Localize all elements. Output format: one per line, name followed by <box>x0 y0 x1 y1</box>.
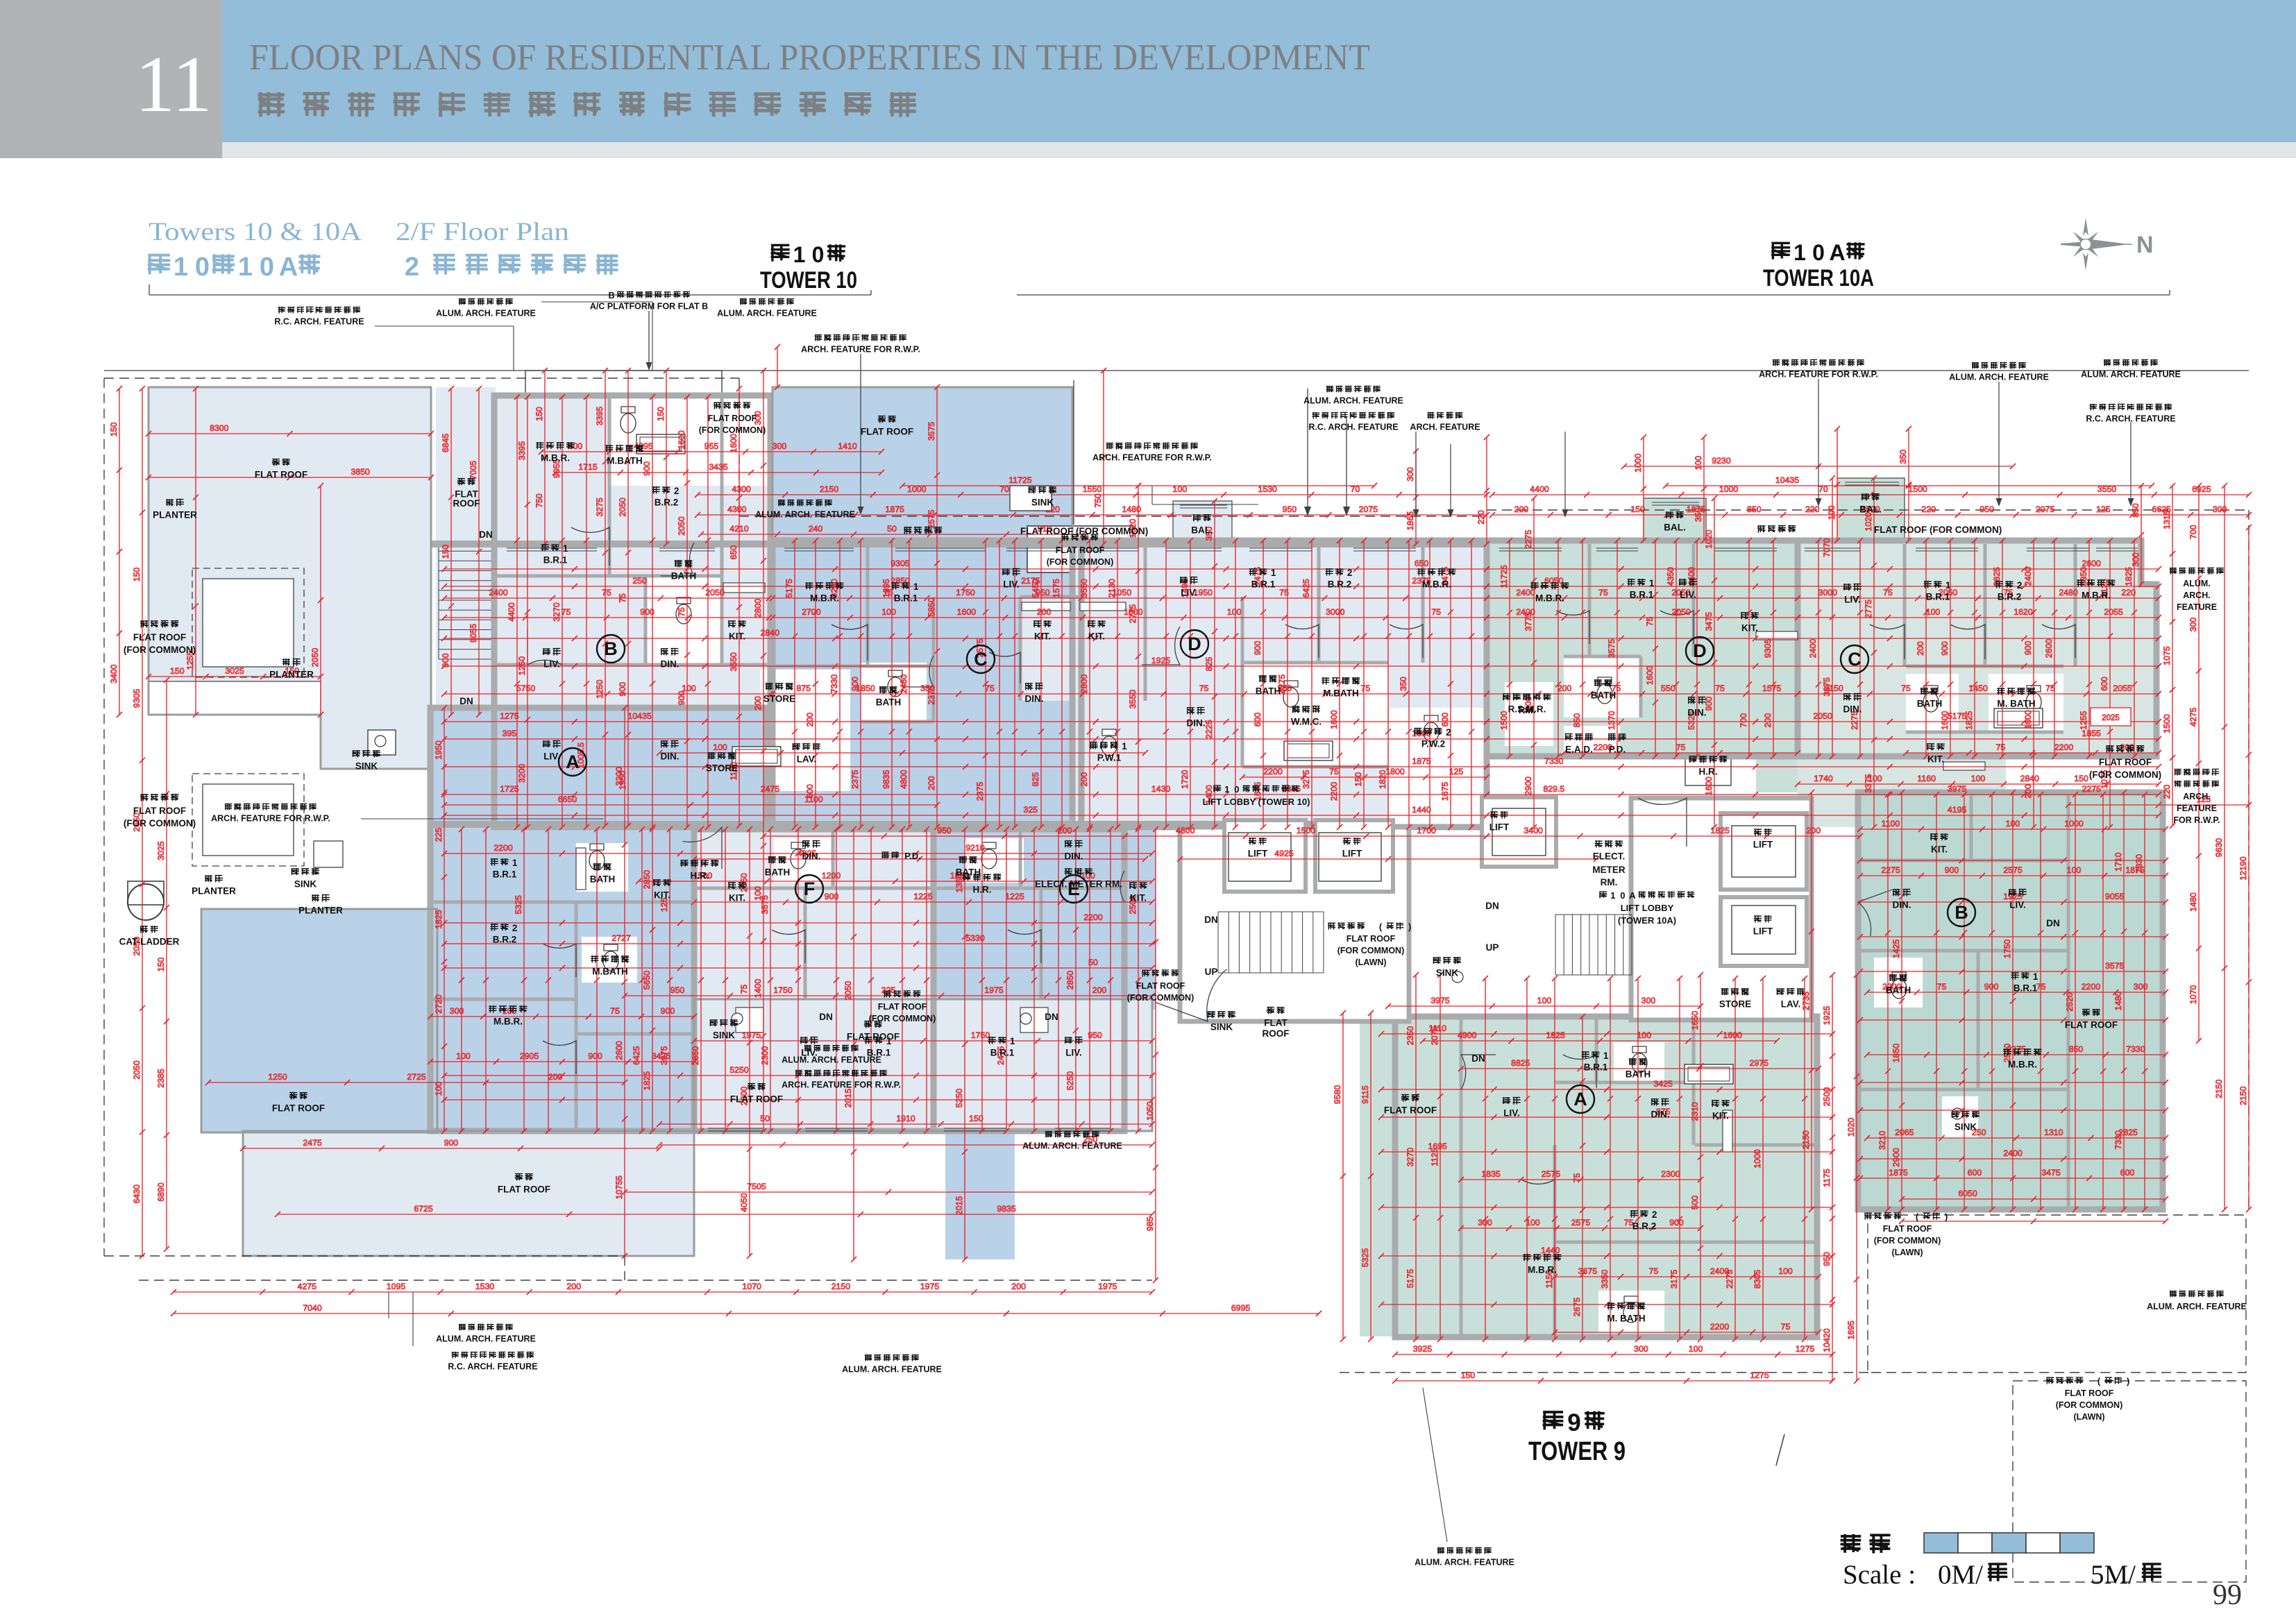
svg-text:3575: 3575 <box>760 895 770 915</box>
svg-text:75: 75 <box>985 683 995 693</box>
svg-text:0: 0 <box>260 253 274 282</box>
svg-text:75: 75 <box>1937 982 1947 992</box>
svg-text:FLAT ROOF: FLAT ROOF <box>255 470 307 480</box>
svg-text:600: 600 <box>1253 713 1263 727</box>
svg-text:600: 600 <box>1968 1168 1982 1178</box>
svg-text:2500: 2500 <box>1822 1087 1832 1107</box>
svg-text:PLANTER: PLANTER <box>298 906 343 916</box>
svg-text:750: 750 <box>1093 493 1103 508</box>
svg-text:1855: 1855 <box>2082 729 2102 738</box>
svg-text:6050: 6050 <box>1544 576 1564 586</box>
svg-text:2275: 2275 <box>2082 784 2102 794</box>
svg-text:ROOF: ROOF <box>1263 1028 1290 1039</box>
svg-text:FOR R.W.P.: FOR R.W.P. <box>2173 815 2220 825</box>
svg-text:150: 150 <box>1353 772 1363 787</box>
svg-text:(: ( <box>1916 1212 1919 1222</box>
svg-text:1710: 1710 <box>2113 852 2123 872</box>
svg-text:A: A <box>1629 890 1636 901</box>
svg-text:1: 1 <box>1010 1036 1015 1046</box>
svg-text:FLAT ROOF: FLAT ROOF <box>861 427 913 437</box>
svg-text:3925: 3925 <box>1413 1344 1433 1354</box>
svg-text:ELECT.: ELECT. <box>1593 851 1626 862</box>
svg-text:2200: 2200 <box>1329 782 1339 801</box>
svg-text:1740: 1740 <box>1814 774 1833 783</box>
svg-text:LIFT: LIFT <box>1753 840 1773 850</box>
svg-text:0: 0 <box>1620 890 1625 901</box>
svg-text:FLAT ROOF: FLAT ROOF <box>1384 1105 1437 1116</box>
svg-text:2050: 2050 <box>618 498 627 517</box>
svg-text:(LAWN): (LAWN) <box>2073 1412 2104 1422</box>
svg-text:3400: 3400 <box>109 664 119 683</box>
svg-text:850: 850 <box>2131 503 2141 518</box>
svg-text:FEATURE: FEATURE <box>2177 804 2217 813</box>
svg-text:2275: 2275 <box>1523 529 1533 549</box>
svg-text:2900: 2900 <box>1523 776 1533 796</box>
svg-text:125: 125 <box>1449 767 1464 776</box>
svg-text:1695: 1695 <box>881 579 891 598</box>
svg-text:ALUM. ARCH. FEATURE: ALUM. ARCH. FEATURE <box>842 1365 942 1375</box>
svg-text:DN: DN <box>1045 1012 1058 1022</box>
svg-text:KIT.: KIT. <box>654 890 670 901</box>
svg-text:1430: 1430 <box>1151 784 1171 794</box>
svg-text:2575: 2575 <box>927 509 936 529</box>
svg-text:2840: 2840 <box>2020 774 2040 783</box>
svg-text:75: 75 <box>1715 683 1725 693</box>
svg-text:M. BATH: M. BATH <box>1607 1314 1645 1324</box>
svg-text:2727: 2727 <box>611 933 631 943</box>
svg-text:950: 950 <box>1283 504 1297 514</box>
svg-text:(FOR COMMON): (FOR COMMON) <box>1047 557 1114 567</box>
svg-text:TOWER 10: TOWER 10 <box>760 267 857 294</box>
svg-text:1400: 1400 <box>753 979 763 999</box>
svg-text:7070: 7070 <box>1822 538 1832 557</box>
svg-text:100: 100 <box>434 1082 444 1096</box>
svg-text:R.C. ARCH. FEATURE: R.C. ARCH. FEATURE <box>448 1362 537 1372</box>
svg-text:FLAT ROOF: FLAT ROOF <box>1883 1224 1932 1234</box>
svg-text:9630: 9630 <box>2214 838 2224 858</box>
svg-text:2600: 2600 <box>2082 559 2102 568</box>
svg-text:ALUM. ARCH. FEATURE: ALUM. ARCH. FEATURE <box>717 309 817 318</box>
svg-text:5325: 5325 <box>514 895 523 915</box>
svg-text:LIV.: LIV. <box>543 751 560 762</box>
svg-text:3275: 3275 <box>595 498 605 517</box>
svg-text:100: 100 <box>1526 1218 1540 1227</box>
svg-text:2: 2 <box>1446 727 1451 738</box>
svg-text:0: 0 <box>1812 240 1825 265</box>
svg-text:220: 220 <box>1805 504 1820 514</box>
svg-text:FLAT ROOF: FLAT ROOF <box>2065 1388 2114 1398</box>
svg-text:100: 100 <box>1537 996 1552 1005</box>
svg-text:4300: 4300 <box>732 484 752 494</box>
svg-text:325: 325 <box>1024 805 1038 815</box>
svg-text:B.R.2: B.R.2 <box>655 498 679 508</box>
svg-text:STORE: STORE <box>763 694 795 704</box>
svg-text:3550: 3550 <box>1128 690 1138 709</box>
svg-text:1410: 1410 <box>838 441 857 451</box>
svg-text:2065: 2065 <box>1895 1128 1914 1137</box>
svg-text:1720: 1720 <box>1180 770 1190 789</box>
svg-text:3575: 3575 <box>1607 639 1617 658</box>
svg-text:3025: 3025 <box>156 841 166 860</box>
svg-text:FLAT: FLAT <box>1264 1018 1288 1028</box>
svg-text:600: 600 <box>1440 713 1450 727</box>
svg-text:2050: 2050 <box>677 516 686 536</box>
svg-text:): ) <box>2127 1376 2129 1386</box>
svg-text:2480: 2480 <box>899 674 909 694</box>
svg-text:KIT.: KIT. <box>1712 1111 1729 1121</box>
svg-text:BATH: BATH <box>1886 985 1911 996</box>
svg-text:FLAT ROOF: FLAT ROOF <box>708 414 757 423</box>
svg-text:1100: 1100 <box>1882 819 1900 829</box>
svg-text:1: 1 <box>512 858 518 868</box>
svg-text:M.B.R.: M.B.R. <box>810 593 839 604</box>
svg-text:DIN.: DIN. <box>802 851 821 862</box>
svg-text:ALUM. ARCH. FEATURE: ALUM. ARCH. FEATURE <box>782 1055 881 1065</box>
svg-text:900: 900 <box>850 677 860 691</box>
svg-text:(FOR COMMON): (FOR COMMON) <box>2089 770 2161 780</box>
svg-text:4300: 4300 <box>727 504 747 514</box>
svg-text:100: 100 <box>1637 1030 1652 1040</box>
svg-text:BATH: BATH <box>956 867 981 878</box>
svg-text:C: C <box>1848 649 1862 670</box>
svg-text:7330: 7330 <box>2134 854 2144 874</box>
svg-text:B: B <box>604 638 618 659</box>
svg-text:4400: 4400 <box>1530 484 1549 494</box>
svg-text:75: 75 <box>1883 588 1893 597</box>
svg-text:1600: 1600 <box>2023 710 2033 729</box>
svg-text:150: 150 <box>2074 774 2088 783</box>
svg-text:75: 75 <box>1901 683 1911 693</box>
svg-text:700: 700 <box>2188 525 2198 539</box>
svg-text:SINK: SINK <box>294 879 317 890</box>
svg-text:UP: UP <box>1486 942 1499 953</box>
svg-text:100: 100 <box>713 742 727 752</box>
svg-text:ARCH. FEATURE: ARCH. FEATURE <box>1410 423 1480 432</box>
svg-text:1650: 1650 <box>1690 1011 1700 1030</box>
svg-text:825: 825 <box>1031 772 1040 787</box>
svg-text:ALUM. ARCH. FEATURE: ALUM. ARCH. FEATURE <box>436 309 536 318</box>
svg-text:7040: 7040 <box>303 1303 322 1313</box>
svg-text:9: 9 <box>1567 1409 1580 1436</box>
svg-text:600: 600 <box>2100 677 2109 691</box>
svg-text:STORE: STORE <box>1719 999 1751 1010</box>
svg-text:A: A <box>1573 1089 1587 1110</box>
svg-text:M.B.R.: M.B.R. <box>2008 1060 2037 1070</box>
svg-text:2800: 2800 <box>1079 674 1089 694</box>
svg-text:5325: 5325 <box>1360 1248 1370 1268</box>
svg-text:3475: 3475 <box>1704 612 1714 631</box>
svg-text:TOWER 9: TOWER 9 <box>1528 1437 1626 1466</box>
svg-text:0: 0 <box>195 253 210 282</box>
svg-text:1975: 1975 <box>742 1030 761 1040</box>
svg-text:H.R.: H.R. <box>973 885 992 895</box>
svg-text:3350: 3350 <box>1600 1269 1610 1289</box>
svg-text:220: 220 <box>2162 785 2172 799</box>
svg-text:2520: 2520 <box>2065 992 2075 1012</box>
svg-text:1: 1 <box>1793 240 1806 265</box>
svg-text:(FOR COMMON): (FOR COMMON) <box>699 425 766 435</box>
svg-text:2800: 2800 <box>753 599 763 618</box>
svg-text:50: 50 <box>887 524 897 534</box>
svg-text:1750: 1750 <box>971 1030 990 1040</box>
svg-text:220: 220 <box>2121 588 2136 597</box>
svg-text:1075: 1075 <box>2162 646 2172 665</box>
svg-text:M.B.R.: M.B.R. <box>493 1017 523 1027</box>
svg-text:M.BATH: M.BATH <box>607 456 643 466</box>
svg-text:100: 100 <box>1926 607 1941 617</box>
svg-text:2025: 2025 <box>2102 714 2120 722</box>
svg-text:FLAT ROOF: FLAT ROOF <box>498 1184 550 1195</box>
svg-text:1000: 1000 <box>1633 453 1643 473</box>
svg-text:LIFT: LIFT <box>1342 849 1362 859</box>
svg-text:1: 1 <box>913 581 919 592</box>
svg-text:75: 75 <box>677 607 686 617</box>
svg-text:Towers 10 & 10A: Towers 10 & 10A <box>149 218 362 246</box>
svg-text:200: 200 <box>567 1282 582 1291</box>
svg-text:2015: 2015 <box>843 1089 853 1108</box>
svg-text:M.B.R.: M.B.R. <box>1535 593 1564 604</box>
svg-text:P.D.: P.D. <box>904 851 921 861</box>
svg-text:LAV.: LAV. <box>797 754 817 765</box>
svg-text:9055: 9055 <box>469 624 478 643</box>
svg-text:2150: 2150 <box>1801 1130 1811 1150</box>
svg-text:4400: 4400 <box>507 602 516 622</box>
svg-text:2400: 2400 <box>2023 567 2033 586</box>
svg-text:SINK: SINK <box>713 1030 736 1041</box>
svg-text:200: 200 <box>1558 683 1572 693</box>
svg-text:1: 1 <box>1610 890 1615 901</box>
svg-text:6650: 6650 <box>558 794 577 804</box>
svg-text:2: 2 <box>674 486 679 496</box>
svg-text:BAL.: BAL. <box>1191 525 1213 536</box>
svg-text:2600: 2600 <box>614 1041 624 1060</box>
svg-text:M.B.R.: M.B.R. <box>1528 1265 1557 1275</box>
svg-text:KIT.: KIT. <box>729 631 745 642</box>
svg-text:3975: 3975 <box>659 1046 669 1065</box>
svg-text:B.R.1: B.R.1 <box>1584 1062 1608 1073</box>
svg-text:2: 2 <box>1347 568 1353 578</box>
svg-text:1850: 1850 <box>1891 1044 1901 1063</box>
svg-text:5330: 5330 <box>965 933 985 943</box>
svg-text:550: 550 <box>1661 683 1675 693</box>
svg-text:3275: 3275 <box>1301 770 1311 789</box>
svg-text:FLAT ROOF: FLAT ROOF <box>133 632 186 643</box>
svg-text:300: 300 <box>1406 467 1415 482</box>
svg-text:D: D <box>1188 634 1201 654</box>
svg-text:950: 950 <box>937 826 952 835</box>
svg-text:(FOR COMMON): (FOR COMMON) <box>124 645 196 655</box>
svg-text:1600: 1600 <box>1704 776 1714 796</box>
svg-text:5250: 5250 <box>954 1089 964 1108</box>
svg-text:2225: 2225 <box>1204 720 1214 739</box>
svg-text:DN: DN <box>1471 1053 1485 1064</box>
svg-text:300: 300 <box>2188 618 2198 632</box>
svg-text:75: 75 <box>1781 1322 1791 1332</box>
svg-text:350: 350 <box>1399 677 1408 691</box>
svg-text:300: 300 <box>773 441 787 451</box>
svg-text:B.R.1: B.R.1 <box>990 1048 1015 1058</box>
svg-text:100: 100 <box>1227 607 1242 617</box>
svg-text:3675: 3675 <box>1578 1266 1598 1276</box>
svg-text:DIN.: DIN. <box>1843 704 1862 715</box>
svg-text:LIFT: LIFT <box>1489 822 1510 833</box>
svg-text:DN: DN <box>459 696 473 706</box>
svg-text:1575: 1575 <box>1762 683 1782 693</box>
svg-text:900: 900 <box>2023 640 2033 655</box>
svg-text:1310: 1310 <box>2044 1128 2063 1137</box>
svg-text:R.C. ARCH. FEATURE: R.C. ARCH. FEATURE <box>1308 423 1398 432</box>
svg-text:BAL.: BAL. <box>1859 504 1882 515</box>
svg-text:1500: 1500 <box>1297 826 1316 835</box>
svg-text:5850: 5850 <box>927 597 936 617</box>
svg-text:2055: 2055 <box>2104 607 2123 617</box>
svg-text:B.R.2: B.R.2 <box>1998 592 2022 602</box>
svg-text:125: 125 <box>2096 504 2111 514</box>
svg-text:1: 1 <box>1603 1051 1609 1061</box>
svg-text:5750: 5750 <box>516 683 536 693</box>
svg-text:1600: 1600 <box>729 434 738 453</box>
svg-text:B.R.1: B.R.1 <box>1926 592 1950 602</box>
svg-text:1070: 1070 <box>2188 985 2198 1004</box>
svg-text:0: 0 <box>1234 784 1239 794</box>
svg-text:A: A <box>566 751 580 772</box>
svg-text:B.R.2: B.R.2 <box>1632 1221 1657 1232</box>
svg-text:FLAT ROOF: FLAT ROOF <box>730 1094 783 1105</box>
svg-text:300: 300 <box>1641 996 1656 1005</box>
svg-text:1875: 1875 <box>886 504 905 514</box>
svg-text:200: 200 <box>1763 713 1773 728</box>
svg-text:FLAT ROOF: FLAT ROOF <box>272 1103 325 1114</box>
svg-text:M.BATH: M.BATH <box>1323 688 1359 699</box>
svg-text:900: 900 <box>677 691 686 706</box>
svg-text:100: 100 <box>1689 1344 1703 1354</box>
svg-text:BATH: BATH <box>876 697 902 708</box>
svg-text:LIFT: LIFT <box>1753 926 1773 937</box>
svg-text:9580: 9580 <box>1333 1085 1342 1105</box>
svg-text:220: 220 <box>1476 510 1486 525</box>
svg-text:1450: 1450 <box>1968 683 1988 693</box>
svg-text:BATH: BATH <box>1917 699 1943 709</box>
svg-text:8305: 8305 <box>1753 1269 1762 1289</box>
svg-text:7330: 7330 <box>829 674 839 694</box>
svg-text:200: 200 <box>1079 772 1089 787</box>
svg-text:1835: 1835 <box>1481 1169 1501 1179</box>
svg-text:5175: 5175 <box>784 579 794 598</box>
svg-text:PLANTER: PLANTER <box>153 510 197 520</box>
svg-text:955: 955 <box>704 441 719 451</box>
svg-text:2905: 2905 <box>520 1051 539 1061</box>
svg-text:2200: 2200 <box>1263 767 1283 776</box>
svg-text:4800: 4800 <box>1176 826 1195 835</box>
svg-text:DN: DN <box>819 1012 833 1022</box>
svg-text:3975: 3975 <box>1948 784 1967 794</box>
svg-text:3435: 3435 <box>709 462 728 472</box>
svg-text:1825: 1825 <box>2124 567 2134 586</box>
svg-text:4275: 4275 <box>298 1282 317 1291</box>
svg-text:1: 1 <box>1945 580 1951 590</box>
svg-text:1110: 1110 <box>1428 1023 1446 1033</box>
svg-text:6995: 6995 <box>1231 1303 1251 1313</box>
svg-text:900: 900 <box>642 461 652 476</box>
svg-text:PLANTER: PLANTER <box>192 886 236 897</box>
svg-text:1425: 1425 <box>1891 940 1901 959</box>
svg-text:9835: 9835 <box>997 1204 1016 1214</box>
svg-text:75: 75 <box>1996 742 2006 752</box>
svg-text:4925: 4925 <box>1274 849 1294 858</box>
svg-text:1750: 1750 <box>2002 940 2012 959</box>
svg-text:1020: 1020 <box>1846 1118 1856 1137</box>
svg-text:4900: 4900 <box>1458 1030 1477 1040</box>
svg-text:P.W.1: P.W.1 <box>1097 753 1122 763</box>
svg-text:(TOWER 10A): (TOWER 10A) <box>1618 915 1676 926</box>
svg-text:1000: 1000 <box>1753 1149 1762 1169</box>
svg-text:(LAWN): (LAWN) <box>1891 1248 1923 1257</box>
svg-text:2050: 2050 <box>132 1060 142 1080</box>
svg-text:75: 75 <box>1199 683 1209 693</box>
svg-text:1500: 1500 <box>2162 714 2172 733</box>
svg-text:300: 300 <box>2131 552 2141 567</box>
svg-text:100: 100 <box>881 607 896 617</box>
svg-text:8300: 8300 <box>210 423 229 433</box>
svg-text:2775: 2775 <box>1864 600 1873 619</box>
svg-text:ALUM. ARCH. FEATURE: ALUM. ARCH. FEATURE <box>755 510 855 520</box>
svg-text:75: 75 <box>1329 767 1339 776</box>
svg-text:2050: 2050 <box>1671 607 1691 617</box>
svg-text:2475: 2475 <box>303 1138 322 1148</box>
svg-text:9305: 9305 <box>1763 639 1773 658</box>
svg-text:1370: 1370 <box>1607 711 1617 730</box>
svg-text:5175: 5175 <box>1948 711 1967 721</box>
svg-text:M.B.R.: M.B.R. <box>2082 590 2111 601</box>
svg-text:DN: DN <box>1485 901 1499 911</box>
svg-text:6425: 6425 <box>632 1046 641 1065</box>
svg-text:LIFT LOBBY: LIFT LOBBY <box>1621 903 1674 913</box>
svg-text:900: 900 <box>1945 865 1959 875</box>
svg-text:5250: 5250 <box>1065 1071 1075 1091</box>
svg-text:9055: 9055 <box>2105 892 2125 901</box>
svg-text:2400: 2400 <box>1808 639 1818 658</box>
svg-text:SINK: SINK <box>1955 1122 1977 1132</box>
svg-text:B.R.1: B.R.1 <box>493 869 517 880</box>
svg-text:9305: 9305 <box>890 559 910 568</box>
svg-text:100: 100 <box>2067 865 2082 875</box>
svg-text:2015: 2015 <box>954 1196 964 1216</box>
svg-text:(: ( <box>2097 1376 2101 1386</box>
svg-text:DIN.: DIN. <box>1893 900 1911 910</box>
svg-text:LAV.: LAV. <box>1781 999 1801 1010</box>
svg-text:(FOR COMMON): (FOR COMMON) <box>1337 946 1405 955</box>
svg-text:(: ( <box>1379 921 1383 932</box>
svg-text:1: 1 <box>238 253 253 282</box>
svg-text:50: 50 <box>1088 958 1098 967</box>
svg-text:1530: 1530 <box>475 1282 495 1291</box>
svg-text:200: 200 <box>1037 607 1052 617</box>
svg-text:700: 700 <box>1739 713 1748 728</box>
svg-text:4275: 4275 <box>2188 707 2198 726</box>
svg-text:1250: 1250 <box>268 1072 287 1082</box>
svg-text:1160: 1160 <box>1917 774 1936 783</box>
svg-text:1050: 1050 <box>1145 1101 1155 1121</box>
svg-text:1: 1 <box>2033 971 2038 982</box>
svg-text:FLOOR PLANS OF RESIDENTIAL PRO: FLOOR PLANS OF RESIDENTIAL PROPERTIES IN… <box>249 37 1370 78</box>
svg-text:6050: 6050 <box>1958 1189 1977 1198</box>
svg-text:3000: 3000 <box>1818 588 1838 597</box>
svg-text:LIFT: LIFT <box>1248 849 1268 859</box>
svg-text:N: N <box>2136 232 2154 258</box>
svg-text:): ) <box>1945 1212 1948 1222</box>
svg-text:1: 1 <box>1122 741 1127 751</box>
svg-text:4400: 4400 <box>1687 567 1696 586</box>
